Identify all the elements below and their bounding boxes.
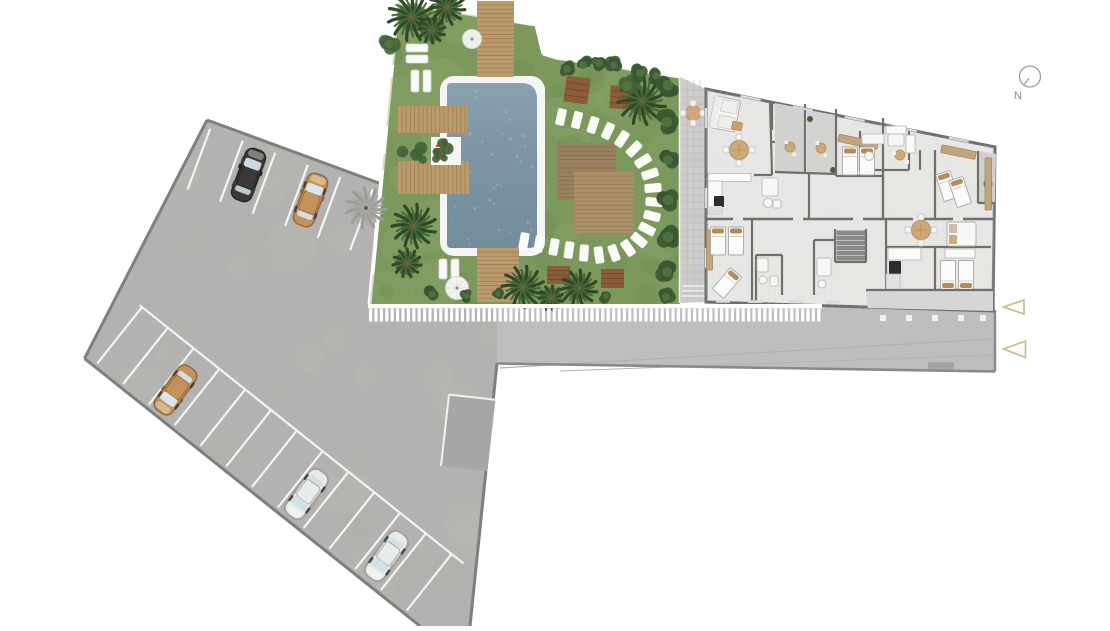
svg-text:N: N (1014, 90, 1022, 102)
